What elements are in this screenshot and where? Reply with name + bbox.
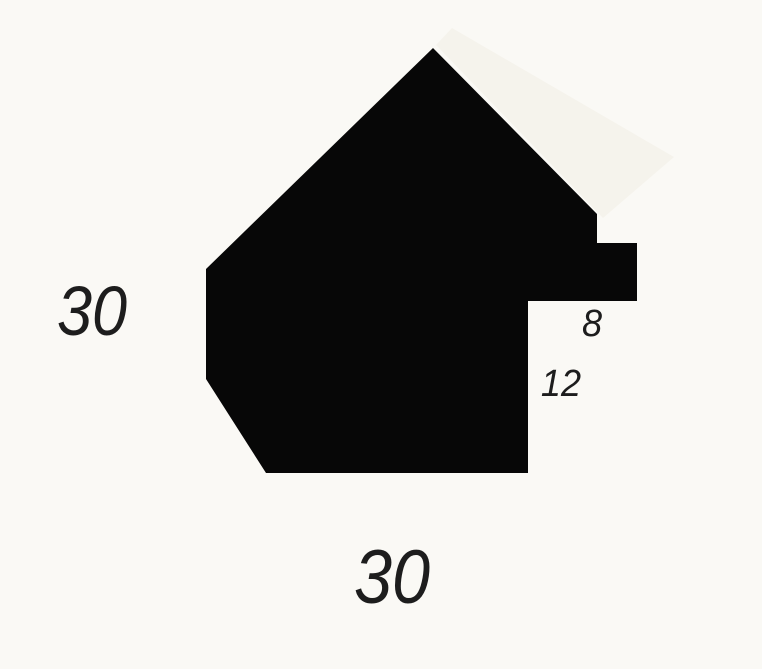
dimension-label-rabbet-depth: 12 <box>541 365 581 403</box>
dimension-label-overall-width: 30 <box>354 540 430 616</box>
moulding-profile-figure: 30 30 8 12 <box>0 0 762 669</box>
dimension-label-overall-height: 30 <box>57 276 127 346</box>
dimension-label-rabbet-width: 8 <box>582 305 602 343</box>
